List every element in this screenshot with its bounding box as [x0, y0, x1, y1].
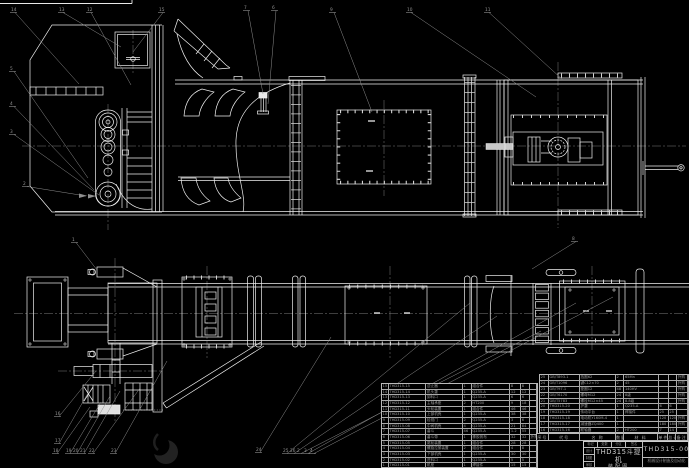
bom-cell: THD315-14 — [389, 390, 427, 395]
bom-cell: 机头罩 — [426, 390, 463, 395]
bom-cell: 外购 — [677, 393, 688, 398]
title-block-sig-draw: 制图 — [584, 455, 595, 462]
bom-cell: 24 — [540, 381, 549, 386]
bom-cell: THD315-04 — [389, 446, 427, 451]
leader-line — [334, 13, 372, 113]
bom-cell: 15 — [382, 384, 389, 389]
callout-balloon: 23 — [111, 448, 117, 454]
leader-line — [84, 391, 120, 454]
bom-cell: 螺母M12 — [580, 393, 616, 398]
bom-cell: 6 — [382, 435, 389, 440]
bom-cell: THD315-19 — [549, 410, 580, 415]
bom-cell — [530, 390, 537, 395]
title-block-sig-check: 审核 — [584, 462, 595, 468]
bom-cell: 键C12×70 — [580, 381, 616, 386]
bom-cell: 140HV — [624, 387, 659, 392]
bom-cell: 38 — [510, 412, 521, 417]
bom-cell: THD315-20 — [549, 404, 580, 409]
leader-line — [15, 13, 79, 85]
bom-cell — [530, 446, 537, 451]
bom-cell — [530, 384, 537, 389]
leader-line — [76, 243, 97, 271]
leader-line — [59, 371, 96, 417]
bom-cell: 84 — [521, 424, 530, 429]
leader-line — [59, 393, 88, 444]
bom-cell: THD315-17 — [549, 422, 580, 427]
bom-table-right: 25GB/T893.1挡圈62265Mn外购24GB/T1096键C12×702… — [539, 374, 689, 433]
leader-line — [260, 337, 331, 453]
bom-cell: 180 — [669, 422, 677, 427]
bom-cell: 2 — [382, 458, 389, 463]
bom-cell: 减速器ZQ400 — [580, 422, 616, 427]
bom-cell: 1 — [463, 458, 472, 463]
bom-cell: 畚斗 — [426, 429, 463, 434]
bom-cell — [669, 387, 677, 392]
bom-cell: 外购 — [677, 375, 688, 380]
bom-cell: 6 — [659, 404, 669, 409]
bom-cell — [669, 381, 677, 386]
bom-cell: 1.2 — [510, 429, 521, 434]
bom-cell: 3 — [382, 452, 389, 457]
bom-cell — [530, 441, 537, 446]
bom-cell: 1 — [463, 384, 472, 389]
leader-line — [14, 107, 94, 191]
callout-balloon: 11 — [485, 7, 491, 13]
bom-cell: 21 — [510, 424, 521, 429]
bom-cell: 8.8级 — [624, 399, 659, 404]
callout-balloon: 16 — [55, 411, 61, 417]
bom-cell: 46 — [521, 407, 530, 412]
title-block-product-cell: THD315斗提机 装配图 — [595, 448, 643, 468]
bom-cell: 主轴承座 — [426, 401, 463, 406]
bom-cell: GB/T5783 — [549, 399, 580, 404]
product-title: THD315斗提机 — [595, 448, 642, 464]
bom-cell: 电动机Y160M-4 — [580, 416, 616, 421]
bom-cell: Q235-A — [472, 390, 510, 395]
organization-name: 机械设计制造及自动化 — [643, 458, 689, 463]
leader-line — [70, 402, 101, 454]
callout-balloon: 22 — [89, 448, 95, 454]
bom-cell: GB/T97.1 — [549, 387, 580, 392]
bom-cell — [659, 393, 669, 398]
bom-cell — [669, 399, 677, 404]
callout-balloon: 4 — [310, 448, 313, 454]
bom-cell: 18 — [521, 401, 530, 406]
bom-cell: 22 — [540, 393, 549, 398]
bom-cell — [659, 399, 669, 404]
bom-cell: 25 — [540, 375, 549, 380]
bom-cell: Q235-A — [472, 418, 510, 423]
bom-cell: 23 — [540, 387, 549, 392]
bom-cell: 上部机壳 — [426, 412, 463, 417]
bom-cell: 进料口 — [426, 458, 463, 463]
callout-balloon: 14 — [11, 7, 17, 13]
callout-balloon: 7 — [244, 5, 247, 11]
bom-cell — [669, 375, 677, 380]
bom-cell: 8 — [510, 384, 521, 389]
bom-cell: 13 — [382, 395, 389, 400]
callout-balloon: 6 — [272, 5, 275, 11]
drawing-type: 装配图 — [595, 464, 642, 468]
callout-balloon: 12 — [87, 7, 93, 13]
bom-cell: 5 — [382, 441, 389, 446]
bom-cell: 尾轮装置 — [426, 441, 463, 446]
leader-line — [91, 13, 131, 86]
bom-cell: 120 — [659, 416, 669, 421]
callout-balloon: 4 — [10, 101, 13, 107]
bom-cell: Q235-A — [472, 395, 510, 400]
bom-cell: Q235-A — [624, 404, 659, 409]
bom-header-cell: 序号 — [537, 434, 549, 440]
bom-cell — [530, 401, 537, 406]
bom-cell: 18 — [540, 416, 549, 421]
bom-cell: 1 — [616, 404, 624, 409]
bom-cell: 20 — [540, 404, 549, 409]
bom-cell: 8 — [521, 384, 530, 389]
callout-balloon: 2 — [297, 448, 300, 454]
bom-cell: THD315-01 — [389, 463, 427, 468]
bom-cell: 外购 — [677, 381, 688, 386]
bom-cell: 17 — [540, 422, 549, 427]
callout-balloon: 10 — [407, 7, 413, 13]
callout-balloon: 19 — [66, 448, 72, 454]
bom-cell: 25 — [659, 410, 669, 415]
bom-cell — [530, 407, 537, 412]
bom-cell: THD315-13 — [389, 395, 427, 400]
bom-cell — [530, 424, 537, 429]
bom-cell: 4 — [510, 446, 521, 451]
bom-cell: THD315-12 — [389, 401, 427, 406]
bom-cell: 6 — [521, 395, 530, 400]
callout-balloon: 3 — [10, 129, 13, 135]
bom-cell: 25 — [669, 410, 677, 415]
bom-cell: 外购 — [677, 387, 688, 392]
bom-cell: 焊接件 — [472, 463, 510, 468]
bom-cell: GB/T1096 — [549, 381, 580, 386]
leader-line — [532, 242, 576, 270]
leader-line — [77, 396, 110, 454]
title-block-number-cell: THD315-00 机械设计制造及自动化 — [643, 442, 689, 468]
bom-cell: 组合件 — [472, 407, 510, 412]
leader-line — [14, 72, 88, 179]
bom-header-cell: 总计 — [668, 434, 676, 440]
bom-cell: 头轮装置 — [426, 407, 463, 412]
bom-cell: 1 — [463, 412, 472, 417]
bom-cell: 护罩 — [580, 404, 616, 409]
bom-cell: 15 — [510, 463, 521, 468]
bom-cell: THD315-15 — [389, 384, 427, 389]
bom-cell: 21 — [540, 399, 549, 404]
bom-cell: 1 — [463, 395, 472, 400]
bom-cell: THD315-02 — [389, 458, 427, 463]
bom-header-cell: 备注 — [676, 434, 688, 440]
sheet-frame-corner — [0, 0, 132, 4]
bom-cell: THD315-08 — [389, 424, 427, 429]
bom-cell: 180 — [659, 422, 669, 427]
bom-cell: 32 — [521, 435, 530, 440]
bolt-ticks-upper — [296, 76, 620, 213]
bom-cell: 1 — [463, 463, 472, 468]
bom-cell: 10 — [382, 412, 389, 417]
bom-cell: 9 — [510, 401, 521, 406]
bom-cell: Q235-A — [472, 412, 510, 417]
bom-cell: 46 — [510, 407, 521, 412]
bom-cell: 24 — [616, 399, 624, 404]
bom-cell: 组合件 — [472, 446, 510, 451]
bom-cell: 5 — [521, 458, 530, 463]
bom-cell: 4 — [382, 446, 389, 451]
callout-balloon: 21 — [80, 448, 86, 454]
bom-cell: 45 — [624, 381, 659, 386]
bom-cell: THD315-18 — [549, 416, 580, 421]
bom-cell: THD315-11 — [389, 407, 427, 412]
bom-header-cell: 单件 — [658, 434, 668, 440]
bom-cell: 4 — [463, 424, 472, 429]
bom-cell: 挡圈62 — [580, 375, 616, 380]
bom-cell: 6 — [521, 418, 530, 423]
bom-cell: 8 — [521, 446, 530, 451]
bom-header-row: 序号代号名 称数量材 料单件总计备注 — [536, 433, 689, 441]
callout-balloon: 13 — [59, 7, 65, 13]
leader-line — [248, 11, 263, 95]
bom-cell: HT200 — [472, 401, 510, 406]
leader-line — [57, 407, 90, 454]
bom-cell: 8 — [382, 424, 389, 429]
bom-row: 1THD315-01机座1焊接件1515 — [382, 463, 537, 468]
bom-cell — [530, 458, 537, 463]
callout-balloon: 18 — [53, 448, 59, 454]
bom-cell: 24 — [616, 393, 624, 398]
bom-cell: 橡胶帆布 — [472, 435, 510, 440]
bom-cell: 2 — [463, 446, 472, 451]
leader-line — [14, 135, 99, 196]
bom-cell: 38 — [521, 412, 530, 417]
bom-cell: Q235-A — [472, 452, 510, 457]
bom-cell: THD315-03 — [389, 452, 427, 457]
bom-cell: 外购 — [677, 422, 688, 427]
bom-cell: 1 — [463, 441, 472, 446]
bom-cell — [530, 452, 537, 457]
centerlines — [14, 30, 689, 422]
callout-balloon: 26 — [290, 448, 296, 454]
bom-cell: 46 — [463, 429, 472, 434]
bom-cell — [669, 393, 677, 398]
callout-balloon: 5 — [10, 66, 13, 72]
bom-cell: 65Mn — [624, 375, 659, 380]
bom-cell: 6 — [510, 395, 521, 400]
bom-cell: GB/T6170 — [549, 393, 580, 398]
bom-cell: THD315-10 — [389, 412, 427, 417]
bom-cell: 28 — [510, 441, 521, 446]
bolt-ticks-lower — [186, 278, 622, 347]
bom-cell: 2 — [463, 418, 472, 423]
bom-cell: THD315-07 — [389, 429, 427, 434]
leader-line — [93, 388, 140, 454]
bom-cell — [624, 416, 659, 421]
callout-balloon: 17 — [55, 438, 61, 444]
bom-cell: 11 — [382, 407, 389, 412]
callout-balloon: 8 — [572, 236, 575, 242]
bom-header-cell: 代号 — [549, 434, 581, 440]
bom-cell: 组合件 — [472, 441, 510, 446]
bom-cell: 9 — [382, 418, 389, 423]
bom-cell: 螺栓M12×45 — [580, 399, 616, 404]
bom-cell — [659, 387, 669, 392]
leader-arrowhead — [88, 194, 96, 199]
bom-cell: 逆止器 — [426, 384, 463, 389]
bom-cell — [677, 404, 688, 409]
bom-cell: Q235-A — [472, 424, 510, 429]
bom-cell: 畚斗带 — [426, 435, 463, 440]
bom-header-cell: 名 称 — [580, 434, 616, 440]
bom-cell: 机座 — [426, 463, 463, 468]
callout-balloon: 3 — [304, 448, 307, 454]
bom-cell: 中间机壳 — [426, 424, 463, 429]
bom-cell: 1 — [463, 407, 472, 412]
bom-cell: 15 — [521, 463, 530, 468]
bom-cell — [530, 395, 537, 400]
bom-cell: Q235-A — [472, 458, 510, 463]
leader-line — [489, 13, 563, 81]
bom-cell: 2 — [616, 381, 624, 386]
bom-cell — [530, 412, 537, 417]
callout-balloon: 2 — [23, 181, 26, 187]
bom-cell — [624, 422, 659, 427]
bom-cell: 19 — [540, 410, 549, 415]
bom-cell: 1 — [616, 410, 624, 415]
bom-cell — [530, 418, 537, 423]
bom-cell: Q235-A — [472, 429, 510, 434]
bom-cell: 2 — [463, 401, 472, 406]
bom-cell: 1 — [616, 422, 624, 427]
bom-cell — [677, 410, 688, 415]
bom-cell: 组合件 — [472, 384, 510, 389]
bom-cell: THD315-05 — [389, 441, 427, 446]
callout-balloon: 1 — [72, 237, 75, 243]
upper-view — [30, 19, 684, 218]
bom-cell — [659, 375, 669, 380]
bom-cell: 14 — [382, 390, 389, 395]
bom-cell: 5 — [510, 458, 521, 463]
watermark-swirl — [150, 434, 179, 464]
callout-balloon: 20 — [73, 448, 79, 454]
title-block: 标记 处数 分区 签名 设计 制图 审核 THD315斗提机 装配图 THD31… — [583, 441, 689, 468]
bom-header-cell: 数量 — [616, 434, 624, 440]
leader-line — [27, 187, 86, 197]
bom-cell: 1 — [463, 435, 472, 440]
bom-cell — [659, 381, 669, 386]
bom-cell: 传动平台 — [580, 410, 616, 415]
bom-cell — [530, 463, 537, 468]
bom-cell: 8级 — [624, 393, 659, 398]
callout-balloon: 15 — [159, 7, 165, 13]
bom-cell: 120 — [669, 416, 677, 421]
bom-cell: 外购 — [677, 416, 688, 421]
bom-cell: 32 — [510, 435, 521, 440]
bom-cell: 垫圈12 — [580, 387, 616, 392]
callout-balloon: 24 — [256, 447, 262, 453]
bom-cell: 6 — [669, 404, 677, 409]
bom-cell: 7 — [382, 429, 389, 434]
bom-cell: 螺旋拉紧装置 — [426, 446, 463, 451]
bom-cell: 检视门 — [426, 418, 463, 423]
bom-cell: 12 — [521, 390, 530, 395]
callout-balloon: 9 — [330, 7, 333, 13]
bom-cell: 12 — [382, 401, 389, 406]
bom-cell: 1 — [616, 416, 624, 421]
bom-table-left: 15THD315-15逆止器1组合件8814THD315-14机头罩1Q235-… — [381, 383, 538, 468]
bom-cell: GB/T893.1 — [549, 375, 580, 380]
cad-sheet: 1413121576910115432811617181920212223242… — [0, 0, 689, 468]
bom-cell: 3 — [510, 418, 521, 423]
bom-cell: 外购 — [677, 399, 688, 404]
bom-cell: THD315-09 — [389, 418, 427, 423]
title-block-sig-design: 设计 — [584, 448, 595, 455]
bom-cell: 30 — [510, 452, 521, 457]
bom-cell: 30 — [521, 452, 530, 457]
bom-cell: 焊接件 — [624, 410, 659, 415]
leader-line — [63, 13, 121, 48]
drawing-number: THD315-00 — [643, 442, 689, 458]
bom-cell: 55 — [521, 429, 530, 434]
bom-cell: 48 — [616, 387, 624, 392]
bom-cell: 28 — [521, 441, 530, 446]
bom-cell: 卸料口 — [426, 395, 463, 400]
bom-cell: 1 — [463, 390, 472, 395]
bom-cell: 2 — [616, 375, 624, 380]
bom-cell: 1 — [382, 463, 389, 468]
callout-balloon: 25 — [283, 448, 289, 454]
bom-cell: 12 — [510, 390, 521, 395]
bom-header-cell: 材 料 — [624, 434, 659, 440]
bom-cell: 下部机壳 — [426, 452, 463, 457]
bom-cell: THD315-06 — [389, 435, 427, 440]
bom-cell: 1 — [463, 452, 472, 457]
